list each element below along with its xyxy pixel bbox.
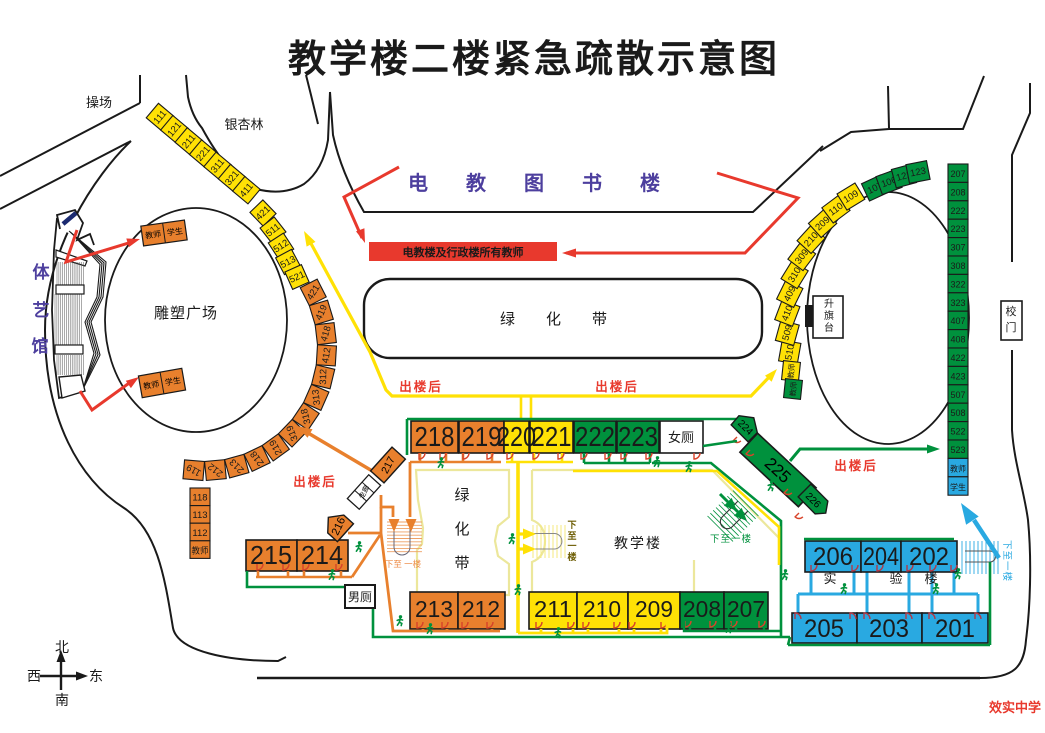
svg-text:化: 化: [454, 521, 469, 538]
svg-text:522: 522: [950, 427, 965, 437]
svg-text:西: 西: [27, 668, 41, 684]
svg-text:422: 422: [950, 353, 965, 363]
svg-text:223: 223: [950, 224, 965, 234]
svg-text:113: 113: [192, 510, 207, 521]
svg-text:211: 211: [534, 596, 572, 622]
svg-text:202: 202: [909, 543, 949, 571]
svg-text:408: 408: [950, 335, 965, 345]
svg-text:208: 208: [950, 187, 965, 197]
svg-text:银杏林: 银杏林: [224, 117, 263, 132]
svg-text:雕塑广场: 雕塑广场: [154, 305, 218, 322]
svg-text:电教图书楼: 电教图书楼: [408, 171, 698, 195]
svg-text:207: 207: [950, 169, 965, 179]
svg-text:313: 313: [310, 389, 323, 406]
svg-text:210: 210: [583, 596, 621, 622]
svg-text:带: 带: [454, 555, 469, 572]
svg-text:门: 门: [1006, 320, 1017, 334]
svg-text:台: 台: [824, 321, 834, 334]
svg-text:男厕: 男厕: [348, 590, 372, 604]
svg-text:教师: 教师: [785, 363, 797, 379]
svg-text:出楼后: 出楼后: [834, 458, 878, 473]
svg-text:312: 312: [318, 369, 329, 385]
svg-text:307: 307: [950, 243, 965, 253]
svg-text:208: 208: [683, 596, 721, 622]
svg-text:206: 206: [813, 543, 853, 571]
svg-text:523: 523: [950, 445, 965, 455]
svg-text:绿化带: 绿化带: [500, 311, 638, 328]
svg-text:馆: 馆: [32, 336, 49, 356]
svg-text:东: 东: [89, 668, 103, 684]
svg-text:操场: 操场: [86, 95, 112, 110]
svg-text:学生: 学生: [950, 482, 966, 492]
svg-text:203: 203: [869, 615, 909, 643]
svg-text:下至一楼: 下至一楼: [710, 533, 752, 545]
svg-text:下: 下: [567, 520, 576, 530]
svg-text:112: 112: [192, 528, 207, 539]
svg-text:222: 222: [950, 206, 965, 216]
svg-text:322: 322: [950, 279, 965, 289]
svg-text:旗: 旗: [824, 309, 834, 322]
svg-text:验: 验: [889, 571, 902, 586]
svg-text:212: 212: [462, 596, 500, 622]
svg-text:下至一楼: 下至一楼: [1001, 540, 1013, 582]
svg-text:下至 一楼: 下至 一楼: [385, 559, 422, 569]
svg-text:艺: 艺: [33, 300, 50, 320]
svg-text:教师: 教师: [191, 545, 209, 555]
svg-text:出楼后: 出楼后: [595, 379, 639, 394]
svg-text:电教楼及行政楼所有教师: 电教楼及行政楼所有教师: [403, 245, 524, 259]
svg-text:北: 北: [55, 639, 69, 655]
svg-text:教学楼二楼紧急疏散示意图: 教学楼二楼紧急疏散示意图: [288, 38, 780, 81]
svg-text:205: 205: [804, 615, 844, 643]
svg-text:绿: 绿: [454, 487, 469, 504]
svg-text:南: 南: [55, 692, 69, 708]
svg-text:423: 423: [950, 371, 965, 381]
svg-text:118: 118: [192, 493, 207, 504]
svg-text:实: 实: [823, 571, 836, 586]
svg-text:一: 一: [567, 541, 576, 551]
svg-text:女厕: 女厕: [668, 430, 694, 445]
svg-text:219: 219: [462, 421, 502, 452]
svg-text:407: 407: [950, 316, 965, 326]
svg-text:效实中学: 效实中学: [989, 700, 1041, 715]
svg-text:209: 209: [635, 596, 673, 622]
svg-text:至: 至: [567, 531, 576, 541]
svg-text:教学楼: 教学楼: [614, 535, 662, 551]
svg-text:308: 308: [950, 261, 965, 271]
svg-text:出楼后: 出楼后: [293, 474, 337, 489]
svg-text:204: 204: [863, 543, 899, 571]
svg-text:508: 508: [950, 408, 965, 418]
svg-text:213: 213: [415, 596, 453, 622]
svg-text:校: 校: [1006, 304, 1017, 318]
svg-text:207: 207: [727, 596, 765, 622]
svg-text:教师: 教师: [950, 463, 966, 473]
svg-text:222: 222: [575, 421, 615, 452]
svg-text:507: 507: [950, 390, 965, 400]
svg-text:218: 218: [415, 421, 455, 452]
svg-text:出楼后: 出楼后: [399, 379, 443, 394]
svg-text:323: 323: [950, 298, 965, 308]
svg-text:体: 体: [33, 262, 51, 282]
svg-text:223: 223: [618, 421, 658, 452]
svg-text:201: 201: [935, 615, 975, 643]
svg-text:221: 221: [532, 421, 572, 452]
svg-text:楼: 楼: [567, 551, 576, 562]
svg-text:220: 220: [497, 421, 536, 452]
svg-text:教师: 教师: [787, 381, 799, 397]
svg-text:升: 升: [824, 298, 834, 310]
